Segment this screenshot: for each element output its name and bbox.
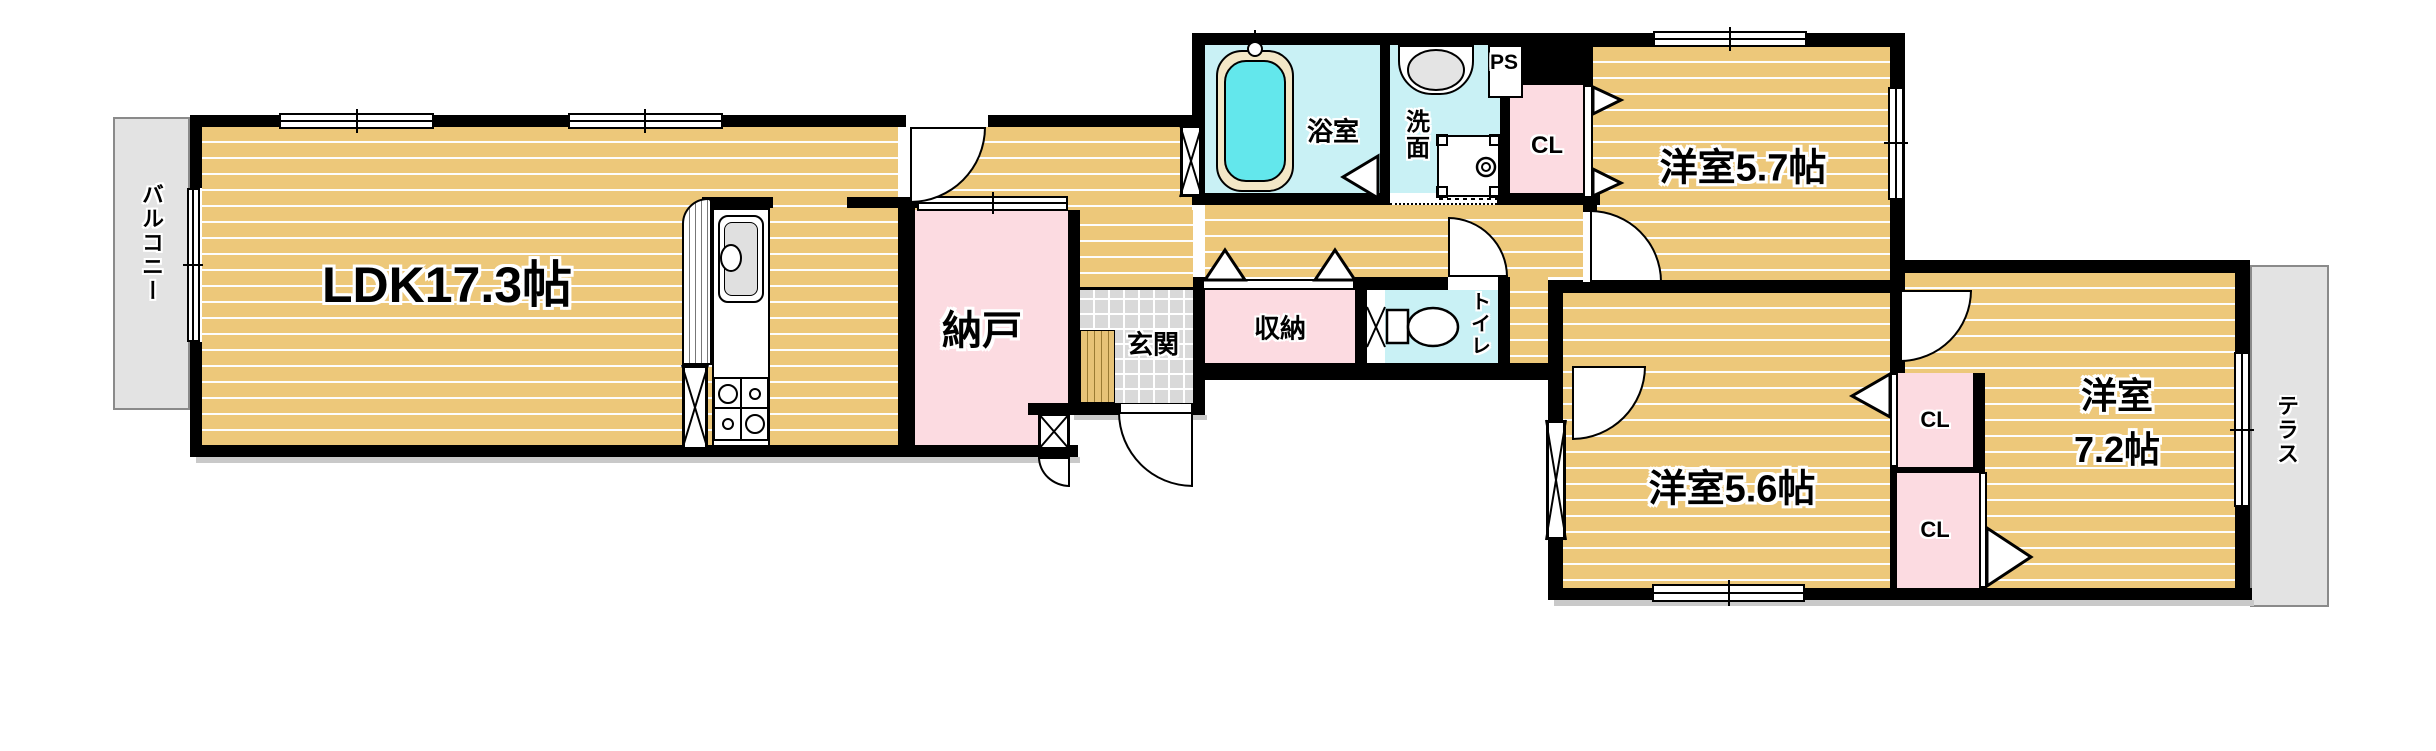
wall-nando-left [898, 198, 915, 445]
closet-72-track [1979, 472, 1987, 588]
refrigerator-space [682, 365, 708, 450]
label-ps: PS [1490, 51, 1518, 75]
wall-toilet-right [1498, 277, 1510, 363]
toilet-door-gap [1367, 290, 1385, 363]
shuno-door-sill [1202, 279, 1355, 290]
window-balcony [187, 188, 200, 342]
wall-nando-right [1068, 210, 1080, 415]
ps-shaft-fill [1523, 45, 1593, 85]
wall-west56-left-a [1548, 280, 1563, 420]
window-west56-bottom [1652, 584, 1805, 602]
label-bathroom: 浴室 [1307, 112, 1359, 149]
floor-plan: LDK17.3帖 納戸 玄関 収納 浴室 洗面 PS CL トイレ 洋室5.7帖… [0, 0, 2436, 751]
label-west72-line2: 7.2帖 [2074, 421, 2160, 473]
wall-bath-top [1192, 33, 1600, 45]
wall-genkan-right [1193, 277, 1205, 415]
wall-bath-bottom-a [1192, 193, 1390, 205]
window-west72-right [2234, 352, 2250, 507]
wall-bath-wash [1380, 45, 1390, 193]
label-terrace: テラス [2270, 394, 2302, 466]
window-west57-right [1888, 87, 1904, 200]
washer-pan [1437, 135, 1500, 197]
label-washroom: 洗面 [1398, 109, 1433, 161]
shaft-nando [1038, 413, 1070, 450]
wall-toilet-top [1367, 277, 1448, 290]
wall-west72-top [1890, 260, 2250, 273]
window-ldk-2 [568, 113, 723, 129]
door-arc-genkan [1118, 412, 1193, 487]
kitchen-sink-basin [724, 222, 758, 296]
label-ldk: LDK17.3帖 [322, 245, 572, 317]
label-nando: 納戸 [942, 298, 1022, 356]
label-cl-56: CL [1920, 407, 1949, 433]
label-balcony: バルコニー [135, 183, 167, 303]
shaft-bath-wall [1180, 125, 1202, 197]
wall-strip-bottom [1193, 363, 1550, 380]
room-west56-floor [1563, 293, 1890, 588]
wall-ldk-bottom [190, 445, 1078, 457]
shaft-west56-wall [1546, 420, 1566, 540]
label-cl-72: CL [1920, 517, 1949, 543]
wall-shuno-toilet [1355, 277, 1367, 363]
label-west72-line1: 洋室 [2081, 367, 2153, 419]
wall-genkan-bottom-l [1068, 403, 1120, 415]
wall-genkan-top-line [1080, 287, 1193, 290]
bathtub-water [1224, 60, 1286, 182]
closet-bath-track [1583, 85, 1593, 198]
label-cl-bath: CL [1531, 132, 1563, 160]
wall-cl56-right [1973, 373, 1985, 472]
door-arc-nando-back [1038, 457, 1070, 487]
label-shuno: 収納 [1254, 309, 1306, 346]
wall-counter-top [712, 197, 770, 210]
nando-sliding-door [917, 196, 1068, 211]
wall-top-right [988, 115, 1205, 127]
label-toilet: トイレ [1465, 291, 1494, 357]
label-west56: 洋室5.6帖 [1649, 458, 1816, 513]
shadow-ldk [196, 457, 1080, 463]
hallway-floor-4 [1510, 277, 1548, 363]
hallway-floor-2 [1068, 210, 1193, 288]
genkan-step [1080, 330, 1115, 403]
window-ldk-1 [279, 113, 434, 129]
wall-ldk-left-a [190, 115, 202, 188]
wall-wash-cl [1500, 85, 1510, 198]
wall-cl72-left [1890, 467, 1897, 600]
label-genkan: 玄関 [1127, 325, 1179, 362]
wall-ldk-left-b [190, 342, 202, 457]
hallway-floor-3 [1205, 205, 1583, 277]
kitchen-divider [682, 198, 712, 365]
wall-cl-mid [1890, 467, 1985, 473]
closet-56-track [1890, 373, 1898, 467]
window-west57-top [1653, 31, 1807, 47]
label-west57: 洋室5.7帖 [1660, 137, 1827, 192]
